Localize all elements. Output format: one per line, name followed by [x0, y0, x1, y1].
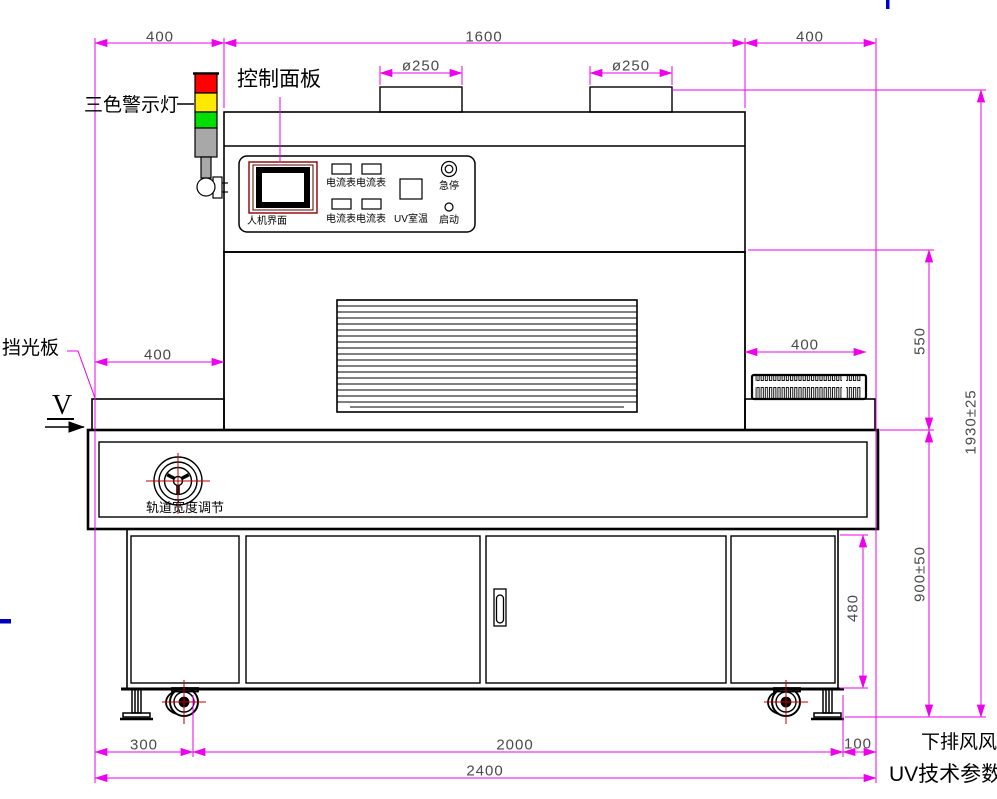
label-warning-light: 三色警示灯 — [84, 96, 179, 115]
dim-chamber-height: 550 — [913, 327, 928, 355]
leveling-foot-left — [120, 689, 153, 719]
dim-base-height: 900±50 — [913, 546, 928, 602]
right-shelf — [745, 399, 875, 430]
leader-lines — [67, 97, 280, 398]
dim-duct-right: ø250 — [612, 59, 650, 74]
label-hmi: 人机界面 — [247, 217, 287, 227]
dim-shelf-right: 400 — [791, 338, 819, 353]
dim-top-right: 400 — [796, 30, 824, 45]
dim-bottom-right: 100 — [844, 737, 872, 752]
upper-housing — [224, 112, 745, 252]
dim-bottom-left: 300 — [130, 738, 158, 753]
ammeter-window-1 — [332, 164, 351, 174]
label-view-marker: V — [52, 392, 72, 420]
label-bottom-exhaust: 下排风风 — [921, 733, 997, 752]
dim-total-height: 1930±25 — [964, 389, 979, 454]
blue-dash-top — [886, 0, 890, 9]
cabinet — [121, 529, 844, 689]
blue-dash-left — [0, 619, 11, 624]
label-ammeter-4: 电流表 — [356, 215, 386, 225]
dim-bottom-center: 2000 — [496, 738, 533, 753]
label-light-shield: 挡光板 — [2, 339, 59, 358]
vent-grille — [752, 375, 866, 399]
caster-right — [764, 680, 808, 724]
label-ammeter-2: 电流表 — [356, 179, 386, 189]
ammeter-window-4 — [362, 199, 381, 209]
dim-shelf-left: 400 — [144, 348, 172, 363]
cad-linework — [0, 0, 997, 799]
dim-top-left: 400 — [146, 30, 174, 45]
exhaust-duct-left — [380, 87, 462, 112]
label-ammeter-3: 电流表 — [326, 215, 356, 225]
label-start: 启动 — [439, 216, 459, 226]
louver-panel — [337, 300, 637, 412]
start-button — [445, 203, 453, 211]
lamp-chamber — [224, 252, 745, 430]
dim-cabinet-height: 480 — [846, 594, 861, 622]
label-estop: 急停 — [439, 182, 459, 192]
warning-light-tower — [193, 74, 228, 199]
label-ammeter-1: 电流表 — [326, 179, 356, 189]
dimension-lines — [95, 43, 981, 778]
ammeter-window-3 — [332, 199, 351, 209]
label-uv-tech-params: UV技术参数 — [889, 764, 997, 785]
ammeter-window-2 — [362, 164, 381, 174]
dim-bottom-total: 2400 — [466, 764, 503, 779]
estop-button — [442, 162, 457, 177]
exhaust-duct-right — [590, 87, 672, 112]
extension-lines — [95, 38, 986, 783]
uv-temp-window — [400, 179, 422, 199]
label-uv-temp: UV室温 — [394, 215, 428, 225]
door-handle — [494, 589, 506, 626]
leveling-foot-right — [811, 689, 844, 719]
caster-left — [162, 680, 206, 724]
label-track-width-adjust: 轨道宽度调节 — [146, 501, 224, 514]
dim-top-center: 1600 — [465, 30, 502, 45]
left-shelf — [92, 399, 224, 430]
hmi-screen — [259, 170, 307, 205]
label-control-panel: 控制面板 — [237, 69, 321, 90]
drawing-canvas: 400 1600 400 ø250 ø250 400 400 300 2000 … — [0, 0, 997, 799]
dim-duct-left: ø250 — [402, 59, 440, 74]
